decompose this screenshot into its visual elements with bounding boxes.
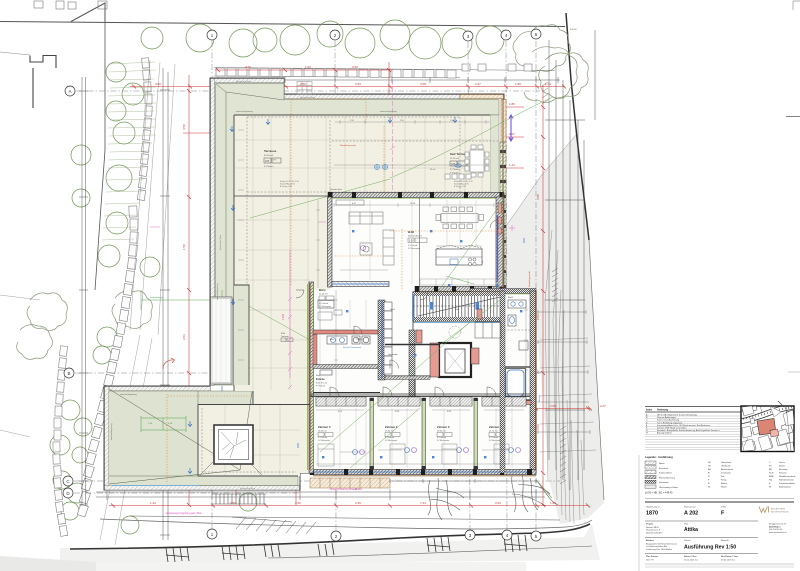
svg-text:4.68: 4.68 (420, 82, 426, 86)
svg-text:Tür in Einteilung angepasst: Tür in Einteilung angepasst (657, 421, 683, 424)
svg-text:1.50: 1.50 (182, 244, 186, 250)
svg-text:Plannummer: Plannummer (684, 506, 696, 509)
svg-text:Decke: Decke (779, 462, 786, 464)
svg-text:Kunststeinplatten: Kunststeinplatten (779, 482, 796, 485)
svg-text:2.50: 2.50 (230, 501, 236, 505)
svg-text:1.86: 1.86 (550, 501, 556, 505)
svg-text:4.50: 4.50 (155, 82, 161, 86)
svg-text:Oberkante: Oberkante (721, 465, 732, 468)
svg-text:RaI: RaI (769, 480, 773, 482)
svg-text:Gard.: Gard. (390, 309, 395, 311)
svg-text:1.44: 1.44 (150, 501, 156, 505)
svg-text:D: Weissputz: D: Weissputz (319, 305, 331, 308)
svg-text:Unterkante: Unterkante (721, 461, 732, 464)
svg-text:1.8: 1.8 (409, 239, 413, 243)
svg-text:Hauptstrasse 8: Hauptstrasse 8 (646, 529, 661, 532)
svg-text:Rot: Rot (721, 475, 725, 478)
svg-text:2.50: 2.50 (350, 120, 354, 122)
svg-text:W: W (708, 487, 710, 489)
svg-text:D: Weissputz: D: Weissputz (437, 439, 449, 442)
svg-text:F: Platten: F: Platten (264, 165, 274, 168)
svg-text:B: Fertig +0.02: B: Fertig +0.02 (280, 185, 292, 188)
svg-text:F: Parkett: F: Parkett (316, 385, 325, 388)
svg-text:23.02.2023 rko: 23.02.2023 rko (721, 559, 736, 562)
svg-text:1.86: 1.86 (515, 82, 521, 86)
svg-text:extensiv Begrünung: extensiv Begrünung (216, 283, 219, 300)
svg-text:2.07: 2.07 (600, 404, 606, 408)
svg-text:Innerkante: Innerkante (721, 472, 732, 475)
svg-text:Terrasse: Terrasse (281, 336, 290, 338)
svg-text:c/o Egli-Immobilien AG: c/o Egli-Immobilien AG (646, 545, 667, 548)
svg-text:Wand: Wand (721, 487, 727, 489)
svg-text:Zimmer 4: Zimmer 4 (318, 425, 331, 429)
svg-text:60.39 m2: 60.39 m2 (264, 155, 274, 157)
svg-text:Bruggerstrasse 37: Bruggerstrasse 37 (769, 523, 787, 526)
svg-text:445.40: 445.40 (570, 29, 577, 31)
svg-text:4.50: 4.50 (536, 194, 540, 200)
svg-text:Diverse Änderungen: Diverse Änderungen (657, 416, 677, 419)
svg-text:Metallfensterbank: Metallfensterbank (779, 475, 796, 478)
svg-text:ATELIER WEST: ATELIER WEST (771, 508, 786, 511)
svg-text:Ausführung Rev 1:50: Ausführung Rev 1:50 (684, 545, 736, 551)
svg-text:B.01 8.5 m2: B.01 8.5 m2 (316, 383, 328, 385)
svg-text:GP im GB, Elektro B.V. 3.11.12: GP im GB, Elektro B.V. 3.11.12 Umsetzung (657, 414, 698, 417)
svg-text:Entrée: Entrée (316, 377, 325, 381)
svg-text:Sitzplatz Nord: Sitzplatz Nord (330, 188, 342, 191)
svg-text:3.53: 3.53 (182, 334, 186, 340)
svg-text:SCH: SCH (769, 473, 774, 475)
svg-text:Garderobe: Garderobe (388, 354, 398, 356)
svg-text:14.10 m2: 14.10 m2 (489, 431, 499, 433)
svg-text:A: A (68, 89, 71, 94)
svg-text:Plan Format: Plan Format (646, 555, 658, 558)
svg-text:BR: BR (769, 469, 772, 471)
svg-text:Stütze: Stütze (779, 465, 786, 468)
svg-text:1.44: 1.44 (509, 163, 515, 167)
svg-text:F: Parkett: F: Parkett (408, 244, 417, 247)
svg-text:13.12.2021 rko: 13.12.2021 rko (684, 559, 699, 562)
svg-text:B: Fertig +0.02: B: Fertig +0.02 (454, 185, 466, 188)
svg-text:16.50 m2: 16.50 m2 (318, 431, 328, 433)
svg-text:Attika: Attika (684, 527, 698, 533)
svg-text:D: Weissputz: D: Weissputz (385, 439, 397, 442)
svg-text:4.50: 4.50 (182, 124, 186, 130)
svg-text:5400 Baden: 5400 Baden (769, 525, 781, 528)
svg-text:Kiesstreifen 30cm: Kiesstreifen 30cm (300, 96, 315, 99)
svg-text:Baugesellschaft Neuenhofstrass: Baugesellschaft Neuenhofstrasse (646, 542, 678, 545)
svg-text:Steg: Steg (455, 308, 459, 311)
svg-text:W: W (769, 487, 771, 489)
svg-text:Büro: Büro (319, 288, 326, 292)
svg-text:Datum / Visa: Datum / Visa (684, 555, 697, 558)
svg-text:Brandsch. Büropult/div. Stecke: Brandsch. Büropult/div. Steckerleisten o… (657, 429, 721, 432)
svg-text:2.07: 2.07 (509, 132, 515, 136)
svg-text:Bad: Bad (330, 339, 334, 341)
svg-text:D: Weissputz: D: Weissputz (408, 247, 420, 250)
svg-text:2.50: 2.50 (400, 120, 404, 122)
svg-text:Sickerleitung: Sickerleitung (150, 296, 163, 299)
svg-text:Rondell gesenkt: Rondell gesenkt (340, 144, 356, 147)
svg-text:3.53: 3.53 (355, 82, 361, 86)
svg-text:Objektnummer: Objektnummer (646, 506, 660, 509)
svg-text:Kunststein: Kunststein (659, 481, 670, 484)
svg-text:Küche neue Ausführung: Küche neue Ausführung (657, 419, 680, 422)
svg-text:21.20 m2: 21.20 m2 (450, 158, 460, 160)
svg-text:5400 Ennetbaden: 5400 Ennetbaden (646, 531, 663, 534)
svg-text:A 202: A 202 (684, 511, 698, 517)
svg-text:2.56: 2.56 (355, 501, 361, 505)
svg-text:Zimmer 3 BR Wand verschoben: Zimmer 3 BR Wand verschoben (657, 427, 687, 430)
svg-text:2.50: 2.50 (450, 120, 454, 122)
svg-text:2.56: 2.56 (550, 404, 556, 408)
svg-text:3.53: 3.53 (536, 424, 540, 430)
svg-text:2.56: 2.56 (536, 314, 540, 320)
svg-text:Dusch-Trennwand: Dusch-Trennwand (343, 346, 362, 349)
svg-text:056 204 40 40: 056 204 40 40 (769, 529, 783, 531)
svg-text:D: Weissputz: D: Weissputz (318, 439, 330, 442)
svg-text:extensiv Begrünung: extensiv Begrünung (110, 423, 113, 440)
svg-text:4.50: 4.50 (245, 65, 251, 69)
svg-text:extensiv Begrünung: extensiv Begrünung (380, 110, 397, 113)
svg-text:Neubau MFH: Neubau MFH (646, 527, 659, 529)
svg-text:2.625: 2.625 (282, 313, 285, 320)
svg-text:Kalksandstein: Kalksandstein (659, 472, 673, 475)
svg-text:Dusche: Dusche (539, 394, 541, 402)
svg-text:Änderung: Änderung (657, 409, 668, 412)
svg-text:Kiesstreifen 30cm: Kiesstreifen 30cm (240, 487, 255, 490)
svg-text:Aussenkante: Aussenkante (721, 468, 734, 471)
svg-text:Schacht: Schacht (779, 472, 787, 475)
svg-text:Wohnen/Essen: Wohnen/Essen (408, 236, 423, 238)
svg-text:Kiesstreifen 30cm: Kiesstreifen 30cm (236, 80, 251, 83)
svg-text:Absturzsicherung hindernisfrei: Absturzsicherung hindernisfrei (330, 488, 363, 491)
svg-text:10.20 m2: 10.20 m2 (319, 294, 329, 296)
svg-text:35 m2: 35 m2 (430, 169, 435, 171)
svg-text:Bauherr: Bauherr (646, 539, 654, 542)
svg-text:Projekt: Projekt (646, 523, 653, 526)
svg-text:±0.00 = HB. 352 = 448.40: ±0.00 = HB. 352 = 448.40 (645, 492, 673, 495)
svg-text:F: Parkett: F: Parkett (319, 302, 328, 305)
svg-text:Zimmer 3: Zimmer 3 (437, 425, 450, 429)
svg-text:Lättenweg 10a, 5400 Baden: Lättenweg 10a, 5400 Baden (646, 548, 673, 551)
svg-text:Anhang belüftet: Anhang belüftet (657, 432, 672, 435)
svg-text:3.8: 3.8 (265, 159, 269, 163)
svg-text:B.08: B.08 (408, 230, 414, 234)
svg-text:Backstein: Backstein (659, 467, 669, 470)
svg-text:Rondell gesenkt: Rondell gesenkt (528, 271, 531, 287)
svg-text:MFB: MFB (769, 476, 774, 478)
svg-text:Anpassung Umgebung gem. Plan: Anpassung Umgebung gem. Plan (166, 512, 202, 515)
svg-text:7.44: 7.44 (420, 501, 426, 505)
svg-text:Brüstung: Brüstung (779, 468, 788, 471)
svg-text:Terrasse: Terrasse (264, 149, 277, 153)
svg-text:T/WM: T/WM (356, 339, 362, 341)
svg-text:Parzell: Parzell (684, 539, 691, 542)
svg-text:Bemerkt: Bemerkt (721, 539, 729, 542)
svg-text:1870: 1870 (646, 511, 658, 517)
svg-text:F: Platten: F: Platten (450, 168, 460, 171)
svg-text:2.07: 2.07 (475, 82, 481, 86)
svg-text:2.56: 2.56 (300, 82, 306, 86)
svg-text:extensiv Begrünung: extensiv Begrünung (120, 393, 137, 396)
svg-text:ARCHITEKTEN AG: ARCHITEKTEN AG (771, 510, 789, 513)
svg-text:Wärmedämmung: Wärmedämmung (659, 476, 676, 479)
svg-text:extensiv Begrünung: extensiv Begrünung (236, 110, 253, 113)
svg-text:Bodenablauf: Bodenablauf (779, 487, 791, 489)
svg-text:3.53: 3.53 (495, 501, 501, 505)
svg-text:www.atelierwest.ch: www.atelierwest.ch (769, 531, 788, 534)
svg-text:Rev Datum / Visa: Rev Datum / Visa (721, 555, 739, 558)
svg-text:Boden: Boden (721, 483, 728, 485)
svg-text:D: Weissputz: D: Weissputz (489, 439, 501, 442)
svg-text:Legende:: Legende: (645, 455, 657, 459)
svg-text:Raffstorefenster: Raffstorefenster (779, 479, 794, 482)
svg-text:Beton: Beton (659, 462, 665, 465)
svg-text:3.53: 3.53 (352, 65, 358, 69)
svg-text:Fertig: Fertig (721, 479, 727, 482)
svg-text:3.06: 3.06 (295, 501, 301, 505)
svg-text:1.86: 1.86 (509, 102, 515, 106)
svg-text:Bad 2: Bad 2 (508, 297, 514, 299)
svg-text:Gleichzeitig in Beton: Gleichzeitig in Beton (659, 486, 679, 489)
svg-text:Index: Index (646, 410, 653, 412)
svg-text:Ausführung: Ausführung (658, 455, 673, 459)
svg-text:Kunststeinplatten Diva, OK Wan: Kunststeinplatten Diva, OK Wand versetzt… (657, 424, 711, 427)
svg-text:B: B (67, 371, 70, 376)
svg-text:1.50: 1.50 (305, 65, 311, 69)
svg-text:13.30 m2: 13.30 m2 (437, 431, 447, 433)
svg-text:1.44: 1.44 (545, 82, 551, 86)
svg-text:160 / 79: 160 / 79 (646, 560, 654, 562)
svg-text:Kiesstreifen 30cm: Kiesstreifen 30cm (219, 235, 222, 250)
